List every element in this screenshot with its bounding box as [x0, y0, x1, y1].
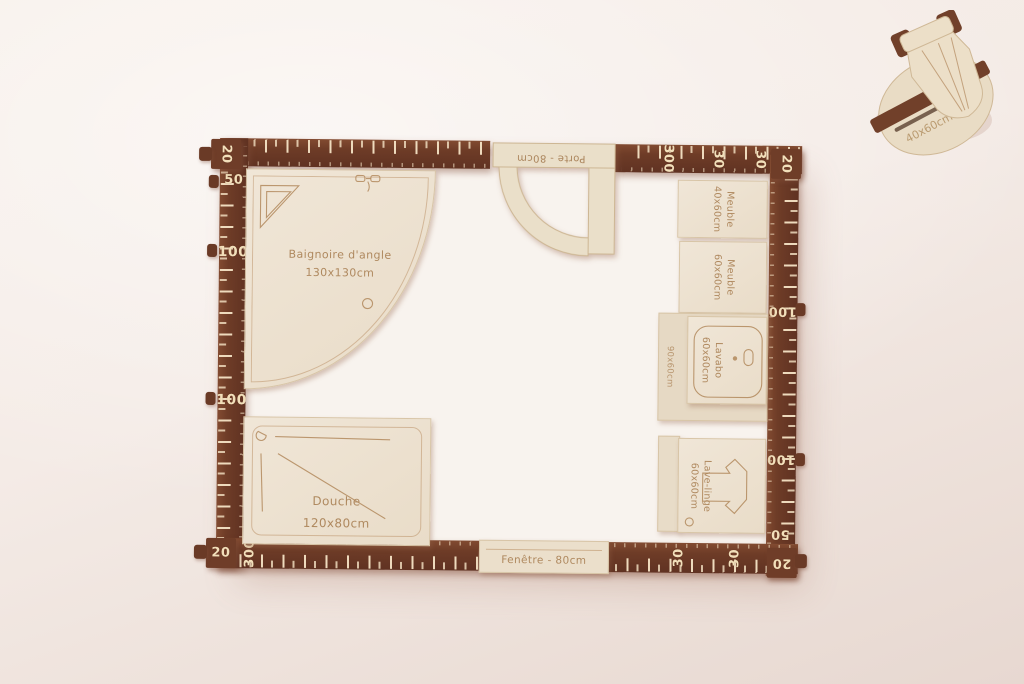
sink-label: Lavabo 60x60cm: [698, 337, 724, 384]
ruler-label: 30: [752, 150, 767, 169]
faucet-icon: [353, 172, 383, 194]
puzzle-tab: [205, 392, 215, 405]
puzzle-tab: [795, 453, 805, 466]
corner-piece-bottom-left: 20: [206, 538, 236, 568]
door-label: Porte - 80cm: [494, 145, 608, 164]
tick-marks: [787, 169, 798, 576]
tick-marks: [217, 152, 228, 568]
corner-piece-top-right: 20: [771, 149, 801, 179]
shower-label: Douche: [243, 493, 429, 509]
cabinet-60x60-label: Meuble 60x60cm: [710, 254, 736, 301]
window-label: Fenêtre - 80cm: [480, 554, 608, 567]
ruler-label: 30: [710, 150, 725, 169]
ruler-label: 30: [727, 549, 742, 568]
ruler-right: 100 100 50: [766, 155, 799, 576]
counter-size-label: 90x60cm: [663, 346, 675, 388]
door-swing-arc: [498, 167, 589, 256]
ruler-label: 100: [767, 451, 796, 466]
shower-piece: Douche 120x80cm: [242, 416, 431, 546]
puzzle-tab: [795, 554, 807, 568]
ruler-label: 20: [218, 144, 233, 163]
tick-marks: [234, 139, 490, 149]
puzzle-tab: [209, 175, 219, 188]
ruler-label: 50: [771, 526, 790, 541]
puzzle-tab: [194, 545, 207, 559]
ruler-top-left-segment: [220, 138, 490, 169]
cabinet-40x60-piece: Meuble 40x60cm: [677, 180, 768, 239]
ruler-label: 20: [778, 154, 793, 173]
washer-label: Lave-linge 60x60cm: [686, 459, 712, 511]
bathtub-piece: Baignoire d'angle 130x130cm: [244, 168, 436, 391]
cabinet-60x60-piece: Meuble 60x60cm: [678, 241, 767, 314]
puzzle-tab: [795, 303, 805, 316]
puzzle-tab: [199, 147, 212, 161]
ruler-label: 100: [216, 392, 247, 408]
bathtub-size-label: 130x130cm: [246, 265, 434, 280]
shower-size-label: 120x80cm: [243, 515, 429, 531]
wc-stack: 40x60cm: [852, 10, 1022, 170]
ruler-label: 300: [660, 144, 675, 173]
puzzle-tab: [207, 244, 217, 257]
ruler-label: 100: [768, 303, 797, 318]
washer-piece: Lave-linge 60x60cm: [677, 438, 766, 534]
photo-scene: 300 30 30 50 100 100 100 100 50 300: [0, 0, 1024, 684]
window-piece: Fenêtre - 80cm: [479, 540, 609, 574]
corner-piece-top-left: 20: [211, 139, 241, 169]
ruler-label: 20: [772, 555, 791, 570]
cabinet-40x60-label: Meuble 40x60cm: [709, 186, 735, 233]
tick-marks: [224, 139, 490, 155]
ruler-label: 50: [224, 173, 243, 188]
window-engraved-line: [486, 549, 602, 551]
bathtub-corner-detail-icon: [245, 169, 437, 392]
ruler-label: 20: [211, 545, 230, 560]
bathtub-label: Baignoire d'angle: [246, 247, 434, 262]
ruler-label: 100: [218, 244, 249, 260]
corner-piece-bottom-right: 20: [767, 548, 797, 578]
sink-piece: Lavabo 60x60cm: [687, 316, 768, 405]
tick-marks: [781, 159, 798, 576]
ruler-label: 30: [671, 548, 686, 567]
tick-marks: [217, 142, 234, 568]
